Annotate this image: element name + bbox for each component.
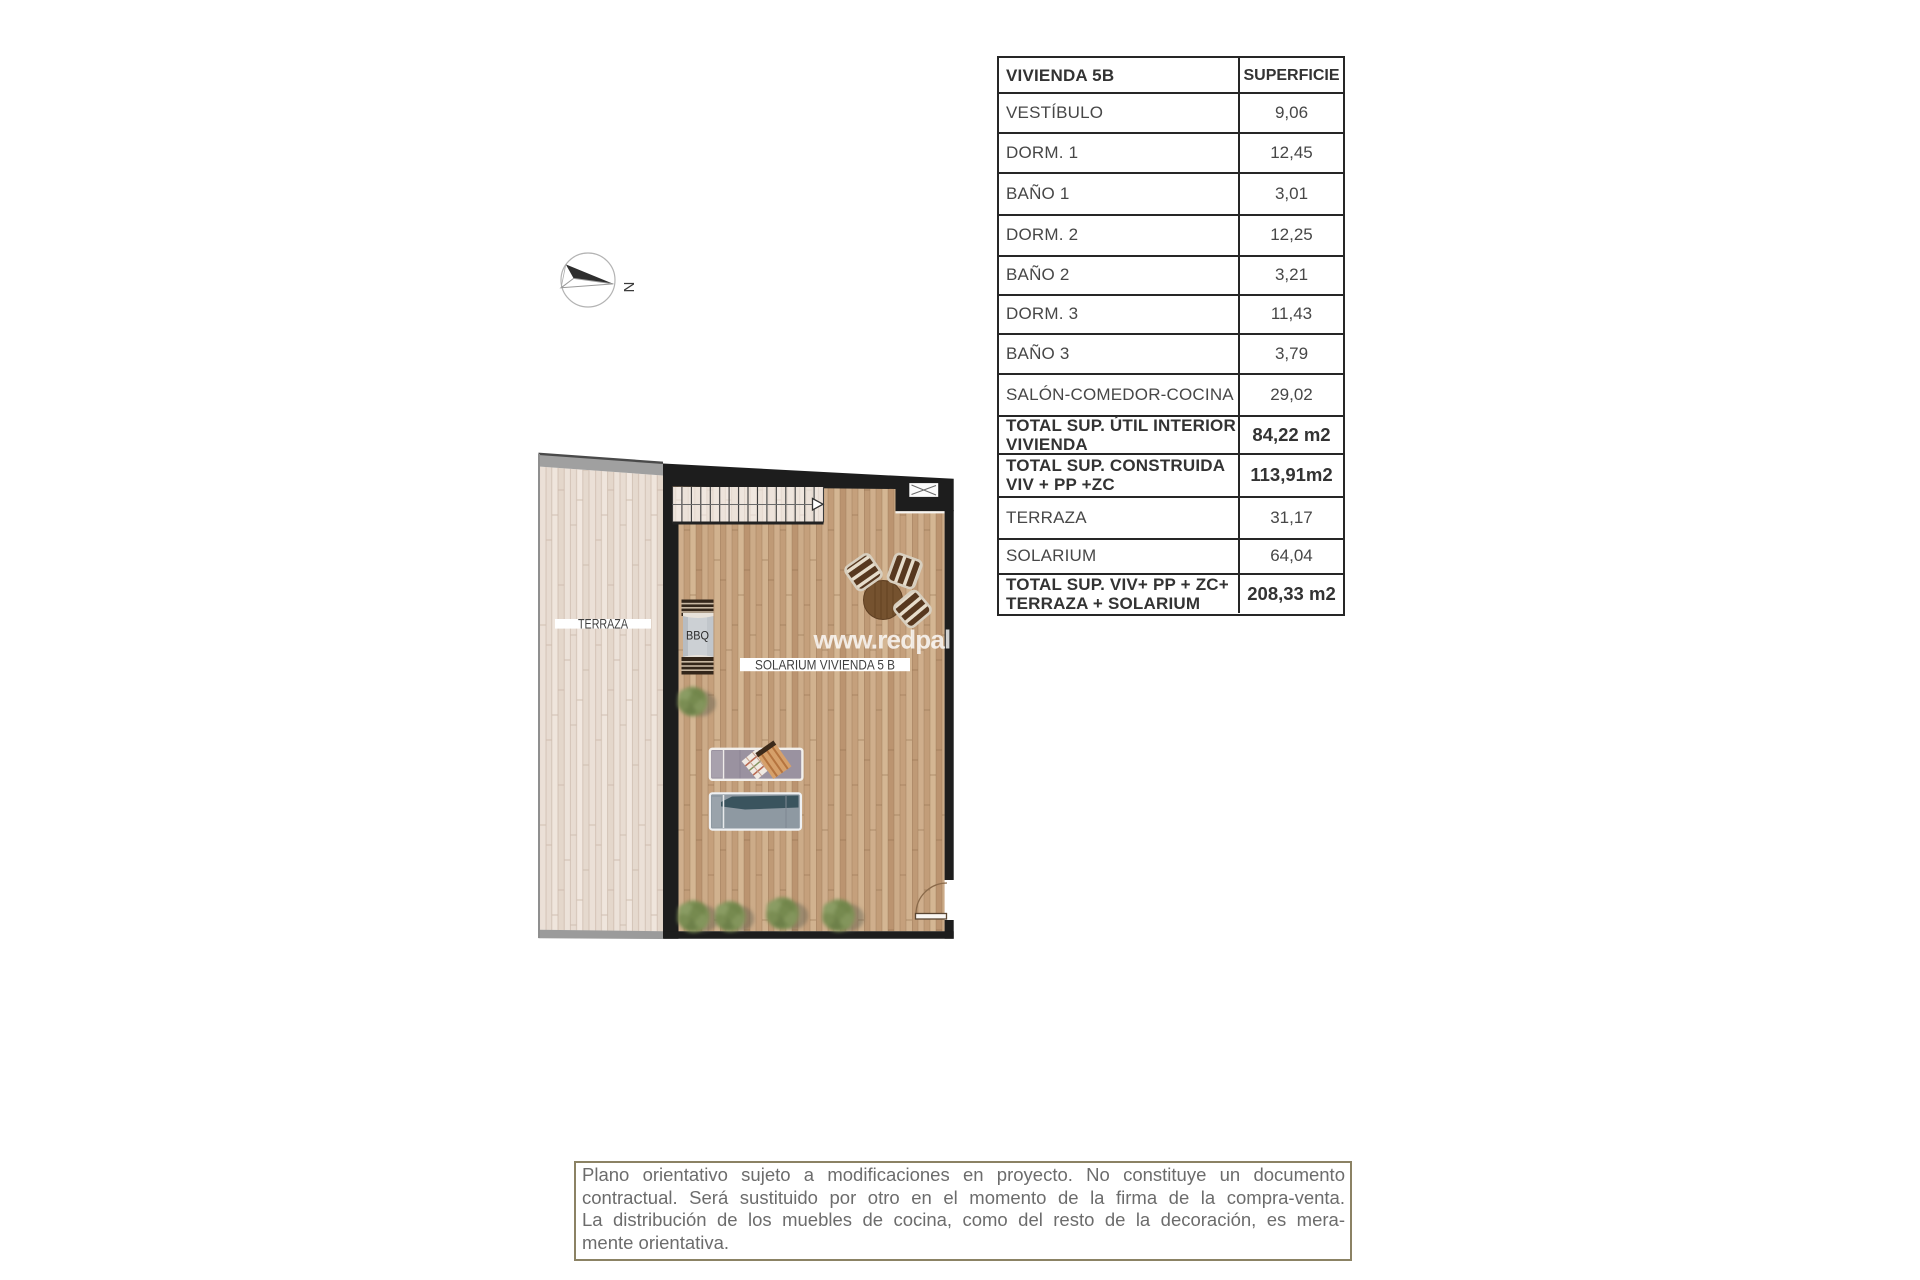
svg-text:N: N <box>620 282 637 293</box>
svg-text:BBQ: BBQ <box>686 631 709 643</box>
svg-text:www.redpal: www.redpal <box>813 625 951 655</box>
svg-text:TERRAZA: TERRAZA <box>578 616 629 632</box>
svg-text:SOLARIUM VIVIENDA 5 B: SOLARIUM VIVIENDA 5 B <box>755 657 895 673</box>
